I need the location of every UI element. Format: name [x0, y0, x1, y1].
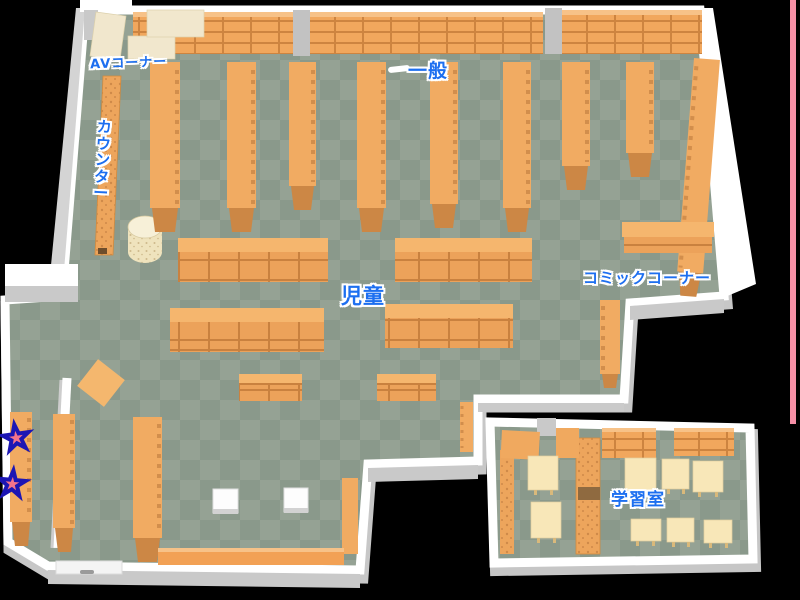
table-leg: [550, 490, 553, 495]
study-table: [667, 518, 694, 542]
left-jut-wall: [5, 264, 78, 286]
star-marker-icon: ★: [0, 466, 29, 503]
low-shelf-front: [178, 252, 328, 282]
notch-wall-face: [478, 403, 624, 412]
pillar: [545, 8, 562, 54]
study-table: [531, 502, 561, 538]
low-shelf-front: [385, 318, 513, 348]
study-divider-gap: [578, 487, 600, 500]
stool: [284, 488, 308, 513]
label-comic-corner: コミックコーナー: [583, 267, 711, 288]
low-shelf-front: [170, 322, 324, 352]
mini-shelf-front: [377, 383, 436, 401]
pillar: [293, 10, 310, 56]
table-leg: [698, 492, 701, 497]
bookshelf-column: [227, 62, 256, 232]
low-shelf-top: [385, 304, 513, 318]
bookshelf-column: [289, 62, 316, 210]
bookshelf-column: [357, 62, 386, 232]
study-left-shelf: [500, 450, 514, 554]
table-leg: [534, 490, 537, 495]
map-edge-accent: [790, 0, 796, 424]
low-shelf-front: [395, 252, 532, 282]
left-jut-wall-face: [5, 286, 78, 302]
counter-end: [98, 248, 107, 254]
bookshelf-bank-top: [310, 12, 543, 17]
table-leg: [672, 542, 675, 547]
bookshelf-column: [133, 417, 162, 562]
table-leg: [682, 489, 685, 494]
top-shelf-banks: [133, 8, 702, 56]
display-cylinder-bottom: [128, 241, 162, 263]
comic-side-shelf: [600, 300, 620, 388]
study-table: [631, 519, 661, 541]
table-leg: [636, 541, 639, 546]
bookshelf-column: [53, 414, 75, 552]
bookshelf-bank-top: [562, 10, 702, 15]
mini-shelf-front: [239, 383, 302, 401]
study-shelf-bank: [602, 428, 656, 458]
table-leg: [667, 489, 670, 494]
label-children: 児童: [341, 280, 385, 310]
study-shelf-bank-top: [602, 428, 656, 432]
wall-shelf: [342, 478, 358, 554]
bookshelf-bank: [562, 10, 702, 54]
bookshelf-column: [150, 62, 180, 232]
floor-map-graphic: [0, 0, 800, 600]
low-shelf-top: [178, 238, 328, 252]
table-leg: [725, 543, 728, 548]
door-handle: [80, 570, 94, 574]
table-leg: [652, 541, 655, 546]
label-general: 一般: [408, 56, 448, 83]
mini-shelf-top: [377, 374, 436, 383]
small-shelf: [460, 402, 473, 452]
low-shelf-top: [170, 308, 324, 322]
low-shelf-top: [395, 238, 532, 252]
study-table: [704, 520, 732, 543]
bookshelf-bank: [310, 12, 543, 54]
stool: [213, 489, 238, 514]
table-leg: [553, 538, 556, 543]
comic-shelf-top: [622, 222, 714, 237]
study-shelf-bank-top: [674, 428, 734, 432]
label-study-room: 学習室: [611, 485, 665, 510]
study-table: [693, 461, 723, 492]
study-table: [528, 456, 558, 490]
study-cabinet: [501, 430, 540, 460]
bookshelf-column: [562, 62, 590, 190]
table-leg: [709, 543, 712, 548]
bookshelf-column: [503, 62, 531, 232]
bookshelf-column: [430, 62, 458, 228]
table-leg: [715, 492, 718, 497]
table-leg: [687, 542, 690, 547]
bookshelf-column: [626, 62, 654, 177]
study-table: [662, 459, 689, 489]
label-av-corner: AVコーナー: [90, 51, 168, 73]
bottom-wall-shelf-top: [158, 548, 344, 552]
study-shelf-bank: [674, 428, 734, 456]
star-marker-icon: ★: [0, 419, 34, 457]
table-leg: [537, 538, 540, 543]
mini-shelf-top: [239, 374, 302, 383]
study-cabinet: [556, 428, 579, 458]
library-floor-map: AVコーナー 一般 カウンター 児童 コミックコーナー 学習室 ★ ★: [0, 0, 800, 600]
av-desk: [147, 10, 204, 37]
